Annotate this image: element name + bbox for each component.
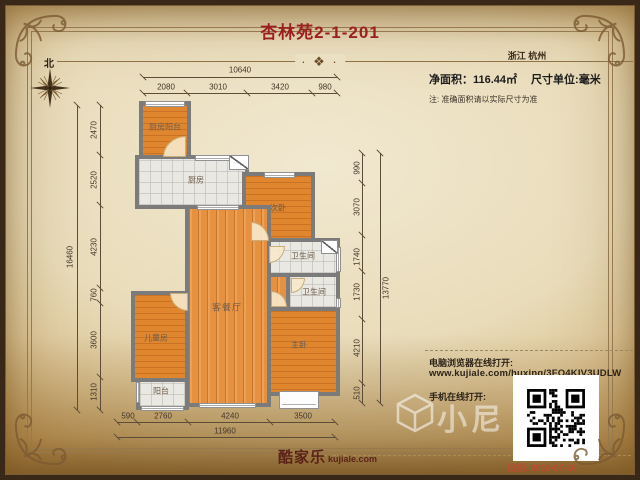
window: [145, 101, 185, 107]
dimension-label: 1730: [353, 283, 362, 301]
watermark-cube-icon: [395, 393, 435, 433]
floorplan-page: 杏林苑2-1-201 浙江 杭州 北: [0, 0, 640, 480]
page-title: 杏林苑2-1-201: [5, 18, 635, 43]
dimension-label: 590: [121, 412, 134, 421]
dimension-label: 13770: [382, 277, 391, 299]
kujiale-logo: 酷家乐kujiale.com: [278, 446, 377, 467]
window: [195, 155, 233, 161]
window: [141, 406, 184, 411]
dimension-line: [362, 153, 363, 403]
dimension-label: 3420: [271, 83, 289, 92]
dimension-label: 980: [318, 83, 331, 92]
room-label: 儿童房: [144, 333, 168, 344]
entry-door-icon: [229, 155, 249, 170]
dimension-label: 10640: [229, 66, 251, 75]
room-label: 厨房: [188, 175, 204, 186]
room-master-bedroom: [267, 307, 340, 396]
dimension-label: 11960: [214, 427, 236, 436]
dimension-label: 3600: [90, 331, 99, 349]
window: [264, 172, 295, 178]
dimension-line: [143, 77, 337, 78]
corner-ornament-icon: [12, 12, 74, 74]
dimension-line: [117, 422, 335, 423]
dimension-label: 2760: [154, 412, 172, 421]
dimension-label: 16460: [66, 246, 75, 268]
dimension-line: [100, 105, 101, 410]
dimension-label: 2470: [90, 121, 99, 139]
window: [199, 403, 256, 408]
window: [197, 205, 239, 210]
room-label: 主卧: [291, 340, 307, 351]
corner-ornament-icon: [566, 12, 628, 74]
dimension-line: [117, 437, 335, 438]
corner-ornament-icon: [12, 406, 74, 468]
date-label: 日期: 2018-07-16: [507, 461, 577, 474]
info-divider: [425, 350, 633, 351]
room-label: 厨房阳台: [149, 122, 181, 133]
dimension-label: 3500: [294, 412, 312, 421]
room-label: 阳台: [153, 386, 169, 397]
room-label: 卫生间: [302, 287, 326, 298]
dimension-label: 3070: [353, 198, 362, 216]
dimension-label: 1740: [353, 248, 362, 266]
dimension-label: 990: [353, 161, 362, 174]
dimension-label: 4240: [221, 412, 239, 421]
dimension-line: [143, 93, 337, 94]
dimension-label: 4210: [353, 339, 362, 357]
room-label: 卫生间: [291, 251, 315, 262]
area-note: 注: 准确面积请以实际尺寸为准: [429, 94, 537, 105]
dimension-label: 760: [90, 288, 99, 301]
corner-ornament-icon: [566, 406, 628, 468]
dimension-label: 2080: [157, 83, 175, 92]
unit-label: 尺寸单位:毫米: [531, 74, 601, 86]
net-area-value: 净面积：116.44㎡: [429, 74, 517, 86]
room-label: 客餐厅: [212, 301, 242, 314]
room-label: 次卧: [270, 203, 286, 214]
dimension-label: 2520: [90, 171, 99, 189]
dimension-line: [77, 105, 78, 410]
dimension-label: 510: [353, 386, 362, 399]
watermark-text: 小尼: [437, 395, 505, 439]
dimension-label: 3010: [209, 83, 227, 92]
door-icon: [321, 240, 338, 254]
window: [136, 382, 140, 403]
window: [336, 298, 341, 308]
bay-window: [279, 391, 319, 409]
divider-ornament-icon: [295, 54, 345, 70]
dimension-label: 1310: [90, 383, 99, 401]
dimension-label: 4230: [90, 238, 99, 256]
